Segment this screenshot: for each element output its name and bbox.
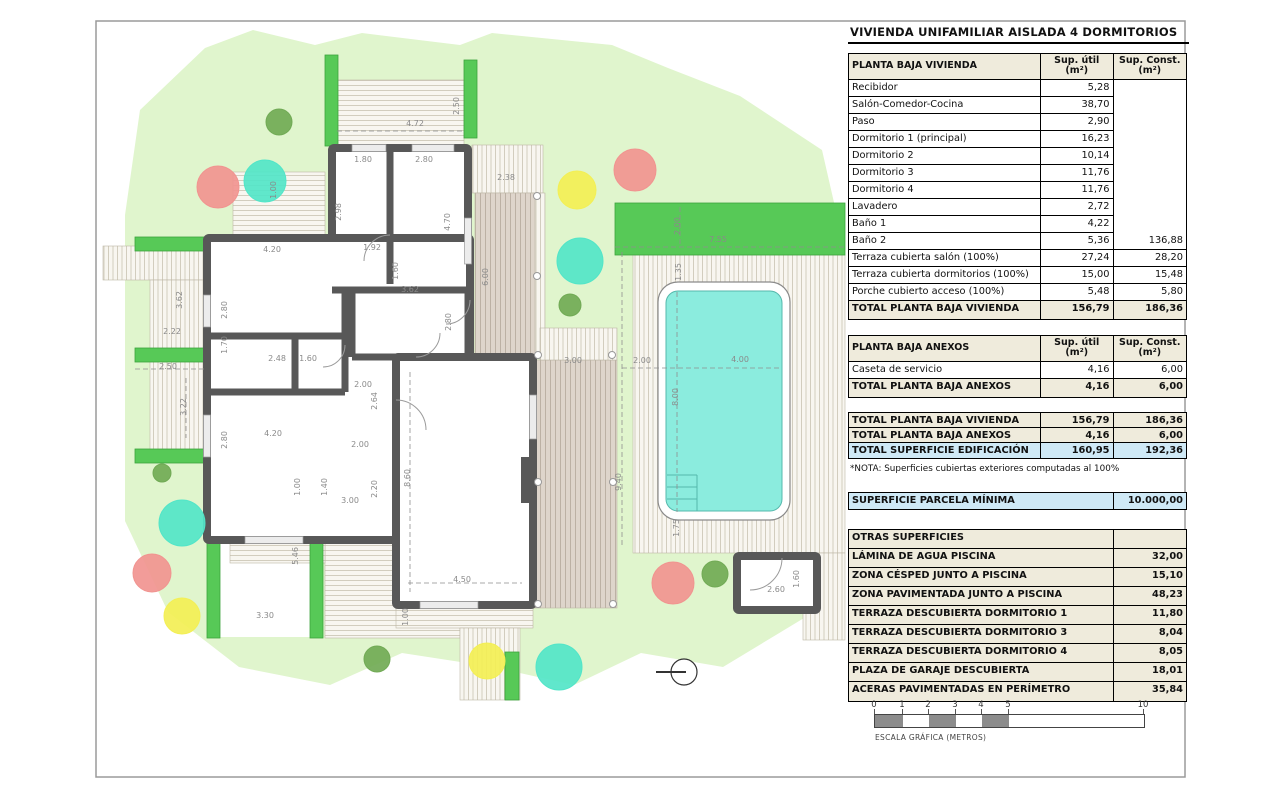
pillar — [521, 457, 535, 503]
dimension-label: 3.62 — [175, 291, 184, 309]
column-dot — [535, 352, 542, 359]
value: 8,05 — [1114, 644, 1187, 663]
tree-icon — [133, 554, 171, 592]
value-sup-util: 156,79 — [1041, 413, 1114, 428]
row-label: ZONA CÉSPED JUNTO A PISCINA — [849, 568, 1114, 587]
value: 35,84 — [1114, 682, 1187, 701]
dimension-label: 2.80 — [220, 431, 229, 449]
hedge — [135, 237, 205, 251]
dimension-label: 2.98 — [334, 203, 343, 221]
dimension-label: 4.50 — [453, 575, 471, 584]
dimension-label: 2.60 — [767, 585, 785, 594]
table-header-row: PLANTA BAJA VIVIENDASup. útil (m²)Sup. C… — [849, 54, 1186, 80]
dimension-label: 2.20 — [370, 480, 379, 498]
scale-tick — [874, 709, 875, 714]
tree-icon — [164, 598, 200, 634]
room — [396, 357, 533, 605]
value-sup-const — [1114, 216, 1187, 233]
table-row: TOTAL PLANTA BAJA ANEXOS4,166,00 — [849, 428, 1186, 443]
row-label: Terraza cubierta dormitorios (100%) — [849, 267, 1041, 284]
tree-icon — [557, 238, 603, 284]
scale-tick — [981, 709, 982, 714]
value-sup-util: 16,23 — [1041, 131, 1114, 148]
row-label: Dormitorio 3 — [849, 165, 1041, 182]
graphic-scale-bar: ESCALA GRÁFICA (METROS) 01234510 — [874, 700, 1164, 750]
row-label: PLAZA DE GARAJE DESCUBIERTA — [849, 663, 1114, 682]
scale-segment — [956, 715, 982, 727]
dimension-label: 3.62 — [401, 285, 419, 294]
table-row: TERRAZA DESCUBIERTA DORMITORIO 38,04 — [849, 625, 1186, 644]
row-label: Caseta de servicio — [849, 362, 1041, 379]
terrace-paving — [533, 360, 617, 608]
table-row: TOTAL PLANTA BAJA VIVIENDA156,79186,36 — [849, 413, 1186, 428]
table-row: Lavadero2,72 — [849, 199, 1186, 216]
row-label: TERRAZA DESCUBIERTA DORMITORIO 4 — [849, 644, 1114, 663]
dimension-label: 4.20 — [263, 245, 281, 254]
tree-icon — [153, 464, 171, 482]
value-sup-const — [1114, 199, 1187, 216]
table-row: Baño 25,36136,88 — [849, 233, 1186, 250]
row-label: Terraza cubierta salón (100%) — [849, 250, 1041, 267]
table-header-row: PLANTA BAJA ANEXOSSup. útil (m²)Sup. Con… — [849, 336, 1186, 362]
value-sup-const: 6,00 — [1114, 379, 1187, 397]
hedge — [505, 652, 519, 700]
window — [420, 602, 478, 609]
column-dot — [535, 479, 542, 486]
value-sup-util: 27,24 — [1041, 250, 1114, 267]
value-sup-util: 2,90 — [1041, 114, 1114, 131]
dimension-label: 2.80 — [444, 313, 453, 331]
value: 32,00 — [1114, 549, 1187, 568]
column-dot — [610, 601, 617, 608]
table-otras-superficies: OTRAS SUPERFICIESLÁMINA DE AGUA PISCINA3… — [848, 529, 1187, 702]
row-label: TOTAL SUPERFICIE EDIFICACIÓN — [849, 443, 1041, 458]
dimension-label: 2.38 — [497, 173, 515, 182]
table-row: Recibidor5,28 — [849, 80, 1186, 97]
table-row: Salón-Comedor-Cocina38,70 — [849, 97, 1186, 114]
table-row: PLAZA DE GARAJE DESCUBIERTA18,01 — [849, 663, 1186, 682]
tree-icon — [266, 109, 292, 135]
value-sup-const: 186,36 — [1114, 413, 1187, 428]
value-sup-util: 2,72 — [1041, 199, 1114, 216]
dimension-label: 1.75 — [672, 519, 681, 537]
table-row: Terraza cubierta salón (100%)27,2428,20 — [849, 250, 1186, 267]
table-row: ACERAS PAVIMENTADAS EN PERÍMETRO35,84 — [849, 682, 1186, 701]
scale-segment — [929, 715, 956, 727]
drawing-sheet: 4.722.501.001.802.802.984.701.921.602.38… — [0, 0, 1280, 800]
value-sup-const: 192,36 — [1114, 443, 1187, 458]
note-text: *NOTA: Superficies cubiertas exteriores … — [848, 464, 1187, 474]
dimension-label: 3.00 — [564, 356, 582, 365]
scale-segment — [875, 715, 903, 727]
window — [352, 145, 386, 152]
value-sup-util: 4,16 — [1041, 428, 1114, 443]
table-row: ZONA PAVIMENTADA JUNTO A PISCINA48,23 — [849, 587, 1186, 606]
scale-segment — [903, 715, 929, 727]
tree-icon — [558, 171, 596, 209]
dimension-label: 6.00 — [481, 268, 490, 286]
table-row: LÁMINA DE AGUA PISCINA32,00 — [849, 549, 1186, 568]
tree-icon — [244, 160, 286, 202]
dimension-label: 1.60 — [792, 570, 801, 588]
dimension-label: 3.30 — [256, 611, 274, 620]
row-label: Paso — [849, 114, 1041, 131]
table-row: Baño 14,22 — [849, 216, 1186, 233]
window — [204, 415, 211, 457]
dimension-label: 8.00 — [671, 388, 680, 406]
value-sup-util: 5,48 — [1041, 284, 1114, 301]
window — [412, 145, 454, 152]
dimension-label: 1.00 — [293, 478, 302, 496]
table-planta-baja-anexos: PLANTA BAJA ANEXOSSup. útil (m²)Sup. Con… — [848, 335, 1187, 398]
dimension-label: 2.00 — [354, 380, 372, 389]
table-planta-baja-vivienda: PLANTA BAJA VIVIENDASup. útil (m²)Sup. C… — [848, 53, 1187, 320]
value: 10.000,00 — [1114, 493, 1187, 509]
dimension-label: 2.80 — [415, 155, 433, 164]
row-label: Dormitorio 4 — [849, 182, 1041, 199]
value-sup-util: 4,16 — [1041, 379, 1114, 397]
dimension-label: 4.72 — [406, 119, 424, 128]
value: 11,80 — [1114, 606, 1187, 625]
table-row: Dormitorio 1 (principal)16,23 — [849, 131, 1186, 148]
table-totals-summary: TOTAL PLANTA BAJA VIVIENDA156,79186,36TO… — [848, 412, 1187, 459]
value-sup-const: 5,80 — [1114, 284, 1187, 301]
pool-water — [666, 291, 782, 511]
table-header-label: PLANTA BAJA ANEXOS — [849, 336, 1041, 362]
row-label: ZONA PAVIMENTADA JUNTO A PISCINA — [849, 587, 1114, 606]
row-label: Baño 1 — [849, 216, 1041, 233]
tree-icon — [702, 561, 728, 587]
dimension-label: 1.00 — [401, 608, 410, 626]
table-row: Caseta de servicio4,166,00 — [849, 362, 1186, 379]
table-parcela-minima: SUPERFICIE PARCELA MÍNIMA10.000,00 — [848, 492, 1187, 510]
dimension-label: 2.22 — [163, 327, 181, 336]
col-header-sup-const: Sup. Const. (m²) — [1114, 54, 1187, 80]
table-row: Porche cubierto acceso (100%)5,485,80 — [849, 284, 1186, 301]
scale-bar-label: ESCALA GRÁFICA (METROS) — [875, 733, 986, 742]
value: 15,10 — [1114, 568, 1187, 587]
table-row: Dormitorio 311,76 — [849, 165, 1186, 182]
column-dot — [534, 193, 541, 200]
table-row: TOTAL PLANTA BAJA VIVIENDA156,79186,36 — [849, 301, 1186, 319]
column-dot — [535, 601, 542, 608]
value-sup-const — [1114, 114, 1187, 131]
value-sup-util: 5,28 — [1041, 80, 1114, 97]
value: 8,04 — [1114, 625, 1187, 644]
scale-segment — [982, 715, 1009, 727]
dimension-label: 4.00 — [731, 355, 749, 364]
value-sup-util: 156,79 — [1041, 301, 1114, 319]
table-row: Dormitorio 411,76 — [849, 182, 1186, 199]
dimension-label: 2.00 — [351, 440, 369, 449]
hedge — [464, 60, 477, 138]
scale-segment — [1009, 715, 1144, 727]
row-label: ACERAS PAVIMENTADAS EN PERÍMETRO — [849, 682, 1114, 701]
table-row: TERRAZA DESCUBIERTA DORMITORIO 48,05 — [849, 644, 1186, 663]
dimension-label: 8.60 — [403, 469, 412, 487]
value-sup-const — [1114, 165, 1187, 182]
dimension-label: 1.35 — [674, 263, 683, 281]
value-sup-const: 15,48 — [1114, 267, 1187, 284]
table-row: TOTAL PLANTA BAJA ANEXOS4,166,00 — [849, 379, 1186, 397]
value-sup-const — [1114, 80, 1187, 97]
table-row: ZONA CÉSPED JUNTO A PISCINA15,10 — [849, 568, 1186, 587]
tree-icon — [536, 644, 582, 690]
value-sup-const: 186,36 — [1114, 301, 1187, 319]
dimension-label: 2.00 — [673, 217, 682, 235]
row-label: LÁMINA DE AGUA PISCINA — [849, 549, 1114, 568]
dimension-label: 4.20 — [264, 429, 282, 438]
table-header-label: PLANTA BAJA VIVIENDA — [849, 54, 1041, 80]
scale-tick — [928, 709, 929, 714]
tree-icon — [614, 149, 656, 191]
dimension-label: 3.00 — [341, 496, 359, 505]
dimension-label: 4.70 — [443, 213, 452, 231]
dimension-label: 2.80 — [220, 301, 229, 319]
terrace-paving — [396, 608, 533, 628]
column-dot — [609, 352, 616, 359]
row-label: SUPERFICIE PARCELA MÍNIMA — [849, 493, 1114, 509]
row-label: TERRAZA DESCUBIERTA DORMITORIO 1 — [849, 606, 1114, 625]
window — [530, 395, 537, 439]
value: 48,23 — [1114, 587, 1187, 606]
col-header-sup-const: Sup. Const. (m²) — [1114, 336, 1187, 362]
table-row: Terraza cubierta dormitorios (100%)15,00… — [849, 267, 1186, 284]
value-sup-const — [1114, 182, 1187, 199]
value-sup-const — [1114, 131, 1187, 148]
tree-icon — [364, 646, 390, 672]
row-label: Dormitorio 1 (principal) — [849, 131, 1041, 148]
value-sup-util: 160,95 — [1041, 443, 1114, 458]
value-sup-const: 6,00 — [1114, 362, 1187, 379]
window — [204, 295, 211, 327]
dimension-label: 2.50 — [452, 97, 461, 115]
dimension-label: 2.48 — [268, 354, 286, 363]
value-sup-util: 11,76 — [1041, 165, 1114, 182]
table-row: TOTAL SUPERFICIE EDIFICACIÓN160,95192,36 — [849, 443, 1186, 458]
row-label: TOTAL PLANTA BAJA VIVIENDA — [849, 301, 1041, 319]
value-sup-util: 4,22 — [1041, 216, 1114, 233]
column-dot — [534, 273, 541, 280]
scale-tick — [1008, 709, 1009, 714]
dimension-label: 2.00 — [633, 356, 651, 365]
value-sup-util: 5,36 — [1041, 233, 1114, 250]
dimension-label: 9.40 — [614, 473, 623, 491]
page-title: VIVIENDA UNIFAMILIAR AISLADA 4 DORMITORI… — [848, 23, 1189, 44]
row-label: Recibidor — [849, 80, 1041, 97]
col-header-sup-util: Sup. útil (m²) — [1041, 336, 1114, 362]
value-sup-const — [1114, 148, 1187, 165]
tree-icon — [159, 500, 205, 546]
table-header-label: OTRAS SUPERFICIES — [849, 530, 1114, 549]
value-sup-util: 10,14 — [1041, 148, 1114, 165]
value-sup-util: 11,76 — [1041, 182, 1114, 199]
scale-tick — [955, 709, 956, 714]
terrace-paving — [337, 80, 464, 146]
scale-bar-segments — [874, 714, 1145, 728]
row-label: TERRAZA DESCUBIERTA DORMITORIO 3 — [849, 625, 1114, 644]
row-label: TOTAL PLANTA BAJA VIVIENDA — [849, 413, 1041, 428]
window — [245, 537, 303, 544]
scale-tick — [902, 709, 903, 714]
dimension-label: 7.55 — [709, 235, 727, 244]
value-sup-const: 28,20 — [1114, 250, 1187, 267]
value-sup-const: 6,00 — [1114, 428, 1187, 443]
value-sup-util: 4,16 — [1041, 362, 1114, 379]
empty-header-cell — [1114, 530, 1187, 549]
row-label: TOTAL PLANTA BAJA ANEXOS — [849, 379, 1041, 397]
row-label: TOTAL PLANTA BAJA ANEXOS — [849, 428, 1041, 443]
value-sup-const — [1114, 97, 1187, 114]
row-label: Porche cubierto acceso (100%) — [849, 284, 1041, 301]
value-sup-const: 136,88 — [1114, 233, 1187, 250]
value: 18,01 — [1114, 663, 1187, 682]
dimension-label: 1.40 — [320, 478, 329, 496]
dimension-label: 1.60 — [299, 354, 317, 363]
tree-icon — [559, 294, 581, 316]
dimension-label: 5.46 — [291, 547, 300, 565]
dimension-label: 1.92 — [363, 243, 381, 252]
value-sup-util: 15,00 — [1041, 267, 1114, 284]
hedge — [325, 55, 338, 146]
terrace-paving — [472, 145, 543, 193]
table-header-row: OTRAS SUPERFICIES — [849, 530, 1186, 549]
table-row: TERRAZA DESCUBIERTA DORMITORIO 111,80 — [849, 606, 1186, 625]
window — [465, 218, 472, 264]
row-label: Baño 2 — [849, 233, 1041, 250]
hedge — [135, 348, 205, 362]
row-label: Lavadero — [849, 199, 1041, 216]
dimension-label: 1.70 — [220, 336, 229, 354]
tree-icon — [652, 562, 694, 604]
room — [737, 556, 817, 610]
dimension-label: 2.64 — [370, 392, 379, 410]
dimension-label: 3.22 — [179, 398, 188, 416]
table-row: Dormitorio 210,14 — [849, 148, 1186, 165]
value-sup-util: 38,70 — [1041, 97, 1114, 114]
dimension-label: 1.00 — [269, 181, 278, 199]
tree-icon — [469, 643, 505, 679]
dimension-label: 2.50 — [159, 362, 177, 371]
tree-icon — [197, 166, 239, 208]
table-row: SUPERFICIE PARCELA MÍNIMA10.000,00 — [849, 493, 1186, 509]
row-label: Dormitorio 2 — [849, 148, 1041, 165]
scale-tick — [1143, 709, 1144, 714]
dimension-label: 1.80 — [354, 155, 372, 164]
dimension-label: 1.60 — [391, 262, 400, 280]
col-header-sup-util: Sup. útil (m²) — [1041, 54, 1114, 80]
table-row: Paso2,90 — [849, 114, 1186, 131]
row-label: Salón-Comedor-Cocina — [849, 97, 1041, 114]
